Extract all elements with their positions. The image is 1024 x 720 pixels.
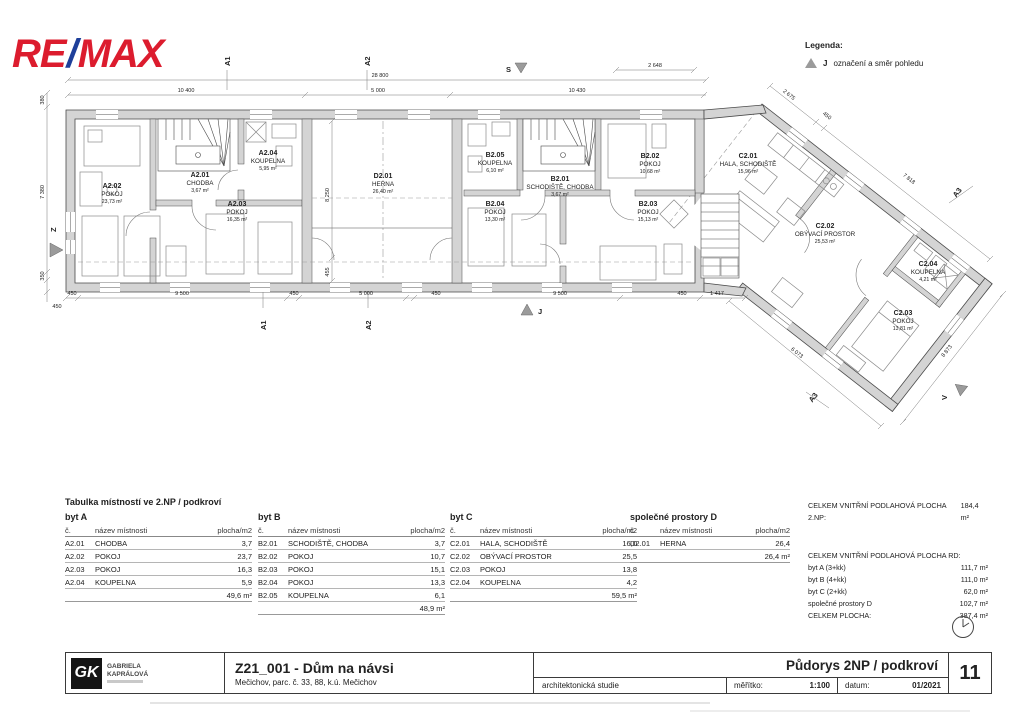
dim-label: 450 xyxy=(431,291,440,297)
title-block: GK GABRIELA KAPRÁLOVÁ Z21_001 - Dům na n… xyxy=(65,652,992,694)
svg-text:3,67 m²: 3,67 m² xyxy=(551,192,569,198)
east-marker-icon xyxy=(952,380,968,396)
svg-text:C2.01: C2.01 xyxy=(739,153,758,160)
table-row: B2.01SCHODIŠTĚ, CHODBA3,7 xyxy=(258,537,445,550)
table-total: 59,5 m² xyxy=(450,589,637,602)
svg-text:13,30 m²: 13,30 m² xyxy=(485,217,506,223)
svg-text:C2.03: C2.03 xyxy=(894,310,913,317)
table-header: č. název místnosti plocha/m2 xyxy=(65,524,252,537)
summary-row: společné prostory D102,7 m² xyxy=(808,598,988,610)
architect-name: GABRIELA KAPRÁLOVÁ xyxy=(107,663,148,684)
room-label-b203: B2.03 POKOJ 15,13 m² xyxy=(637,201,658,223)
section-marker-a1-bottom: A1 xyxy=(259,320,268,330)
table-row: A2.01CHODBA3,7 xyxy=(65,537,252,550)
svg-text:15,96 m²: 15,96 m² xyxy=(738,169,759,175)
floor-plan-sheet: RE/MAX Legenda: J označení a směr pohled… xyxy=(0,0,1024,720)
section-marker-a3: A3 xyxy=(951,186,964,199)
dim-label: 5 000 xyxy=(359,291,373,297)
summary-total-2np: CELKEM VNITŘNÍ PODLAHOVÁ PLOCHA 2.NP:184… xyxy=(808,500,988,524)
table-row: A2.03POKOJ16,3 xyxy=(65,563,252,576)
table-row: B2.03POKOJ15,1 xyxy=(258,563,445,576)
west-marker-icon xyxy=(50,243,63,257)
south-marker: J xyxy=(538,307,542,316)
svg-text:POKOJ: POKOJ xyxy=(484,209,505,216)
dim-label: 28 800 xyxy=(372,73,389,79)
room-label-a201: A2.01 CHODBA 3,67 m² xyxy=(187,172,215,194)
room-label-b202: B2.02 POKOJ 10,68 m² xyxy=(639,153,660,175)
svg-text:CHODBA: CHODBA xyxy=(187,180,215,187)
clock-icon xyxy=(950,614,976,640)
table-subtitle: byt B xyxy=(258,512,445,522)
dim-label: 7 380 xyxy=(40,185,46,199)
room-table-byt-a: Tabulka místností ve 2.NP / podkroví byt… xyxy=(65,497,252,602)
svg-text:POKOJ: POKOJ xyxy=(101,191,122,198)
section-marker-a3-bottom: A3 xyxy=(807,391,820,404)
gk-logo: GK xyxy=(71,658,102,689)
dim-label: 2 648 xyxy=(648,63,662,69)
date-cell: datum:01/2021 xyxy=(837,678,948,693)
dim-label: 450 xyxy=(67,291,76,297)
dim-label: 10 400 xyxy=(178,88,195,94)
svg-text:KOUPELNA: KOUPELNA xyxy=(911,269,946,276)
room-label-a203: A2.03 POKOJ 16,35 m² xyxy=(226,201,247,223)
floor-plan-drawing: 28 800 10 400 5 000 10 430 2 648 380 7 3… xyxy=(0,0,1024,470)
svg-text:6,10 m²: 6,10 m² xyxy=(486,168,504,174)
svg-text:C2.02: C2.02 xyxy=(816,223,835,230)
drawing-info: Půdorys 2NP / podkroví architektonická s… xyxy=(534,653,948,693)
north-marker-icon xyxy=(515,63,527,73)
svg-text:10,68 m²: 10,68 m² xyxy=(640,169,661,175)
west-marker: Z xyxy=(49,227,58,232)
dim-label: 9 500 xyxy=(553,291,567,297)
table-header: č.název místnostiplocha/m2 xyxy=(258,524,445,537)
table-row: B2.02POKOJ10,7 xyxy=(258,550,445,563)
svg-text:B2.02: B2.02 xyxy=(641,153,660,160)
scan-artifact xyxy=(150,702,710,704)
staircase-a xyxy=(158,119,230,171)
room-table-byt-b: byt B č.název místnostiplocha/m2 B2.01SC… xyxy=(258,497,445,615)
table-row: B2.04POKOJ13,3 xyxy=(258,576,445,589)
svg-text:HERNA: HERNA xyxy=(372,181,395,188)
dim-label: 9 500 xyxy=(175,291,189,297)
architect-logo: GK GABRIELA KAPRÁLOVÁ xyxy=(66,653,225,693)
room-label-d201: D2.01 HERNA 26,40 m² xyxy=(372,173,395,195)
dim-label: 2 675 xyxy=(781,89,796,102)
table-total: 48,9 m² xyxy=(258,602,445,615)
table-title xyxy=(450,497,637,511)
project-title: Z21_001 - Dům na návsi xyxy=(235,660,523,676)
table-row: C2.02OBÝVACÍ PROSTOR25,5 xyxy=(450,550,637,563)
dim-label: 455 xyxy=(325,267,331,276)
table-row: A2.02POKOJ23,7 xyxy=(65,550,252,563)
dim-label: 450 xyxy=(52,304,61,310)
south-marker-icon xyxy=(521,304,533,315)
scale-cell: měřítko:1:100 xyxy=(726,678,837,693)
drawing-meta: architektonická studie měřítko:1:100 dat… xyxy=(534,678,948,693)
dim-label: 6 073 xyxy=(789,347,804,360)
room-label-c203: C2.03 POKOJ 13,81 m² xyxy=(892,310,913,332)
svg-text:POKOJ: POKOJ xyxy=(637,209,658,216)
svg-text:25,53 m²: 25,53 m² xyxy=(815,239,836,245)
summary-heading: CELKEM VNITŘNÍ PODLAHOVÁ PLOCHA RD: xyxy=(808,550,988,562)
table-row: C2.03POKOJ13,8 xyxy=(450,563,637,576)
dim-label: 450 xyxy=(821,111,832,121)
room-table-byt-c: byt C č.název místnostiplocha/m2 C2.01HA… xyxy=(450,497,637,602)
summary-row: byt C (2+kk)62,0 m² xyxy=(808,586,988,598)
table-header: č.název místnostiplocha/m2 xyxy=(630,524,790,537)
table-subtitle: byt A xyxy=(65,512,252,522)
firm-tagline-bar xyxy=(107,680,143,683)
dim-label: 10 430 xyxy=(569,88,586,94)
dim-label: 450 xyxy=(677,291,686,297)
dim-label: 1 417 xyxy=(710,291,724,297)
project-location: Mečichov, parc. č. 33, 88, k.ú. Mečichov xyxy=(235,678,523,687)
svg-text:OBÝVACÍ PROSTOR: OBÝVACÍ PROSTOR xyxy=(795,229,856,238)
svg-text:SCHODIŠTĚ, CHODBA: SCHODIŠTĚ, CHODBA xyxy=(526,182,594,191)
room-label-a202: A2.02 POKOJ 23,73 m² xyxy=(101,183,122,205)
table-title xyxy=(630,497,790,511)
section-marker-a2: A2 xyxy=(363,56,372,66)
svg-text:16,35 m²: 16,35 m² xyxy=(227,217,248,223)
svg-text:15,13 m²: 15,13 m² xyxy=(638,217,659,223)
project-phase: architektonická studie xyxy=(534,681,726,690)
svg-text:B2.04: B2.04 xyxy=(486,201,505,208)
svg-text:B2.03: B2.03 xyxy=(639,201,658,208)
dim-label: 8 250 xyxy=(325,188,331,202)
table-row: C2.01HALA, SCHODIŠTĚ16,0 xyxy=(450,537,637,550)
svg-text:D2.01: D2.01 xyxy=(374,173,393,180)
drawing-title: Půdorys 2NP / podkroví xyxy=(534,653,948,678)
room-table-spolecne-d: společné prostory D č.název místnostiplo… xyxy=(630,497,790,563)
room-label-b205: B2.05 KOUPELNA 6,10 m² xyxy=(478,152,513,174)
staircase-b xyxy=(523,119,595,171)
table-total: 49,6 m² xyxy=(65,589,252,602)
svg-text:KOUPELNA: KOUPELNA xyxy=(251,158,286,165)
svg-text:C2.04: C2.04 xyxy=(919,261,938,268)
dim-label: 7 818 xyxy=(901,173,916,186)
svg-text:POKOJ: POKOJ xyxy=(892,318,913,325)
svg-text:HALA, SCHODIŠTĚ: HALA, SCHODIŠTĚ xyxy=(720,159,777,168)
svg-text:B2.01: B2.01 xyxy=(551,176,570,183)
project-info: Z21_001 - Dům na návsi Mečichov, parc. č… xyxy=(225,653,534,693)
svg-text:3,67 m²: 3,67 m² xyxy=(191,188,209,194)
svg-text:POKOJ: POKOJ xyxy=(226,209,247,216)
north-marker: S xyxy=(506,65,511,74)
summary-row: byt B (4+kk)111,0 m² xyxy=(808,574,988,586)
area-summary: CELKEM VNITŘNÍ PODLAHOVÁ PLOCHA 2.NP:184… xyxy=(808,500,988,622)
room-label-b204: B2.04 POKOJ 13,30 m² xyxy=(484,201,505,223)
svg-text:5,95 m²: 5,95 m² xyxy=(259,166,277,172)
svg-text:A2.01: A2.01 xyxy=(191,172,210,179)
svg-text:26,40 m²: 26,40 m² xyxy=(373,189,394,195)
table-header: č.název místnostiplocha/m2 xyxy=(450,524,637,537)
dim-label: 5 000 xyxy=(371,88,385,94)
table-total: 26,4 m² xyxy=(630,550,790,563)
table-subtitle: byt C xyxy=(450,512,637,522)
table-title xyxy=(258,497,445,511)
svg-text:A2.03: A2.03 xyxy=(228,201,247,208)
svg-text:13,81 m²: 13,81 m² xyxy=(893,326,914,332)
room-label-a204: A2.04 KOUPELNA 5,95 m² xyxy=(251,150,286,172)
table-subtitle: společné prostory D xyxy=(630,512,790,522)
table-row: B2.05KOUPELNA6,1 xyxy=(258,589,445,602)
section-marker-a1: A1 xyxy=(223,56,232,66)
table-row: C2.04KOUPELNA4,2 xyxy=(450,576,637,589)
summary-row: byt A (3+kk)111,7 m² xyxy=(808,562,988,574)
east-marker: V xyxy=(940,395,949,400)
svg-text:KOUPELNA: KOUPELNA xyxy=(478,160,513,167)
scan-artifact xyxy=(690,710,970,712)
section-marker-a2-bottom: A2 xyxy=(364,320,373,330)
dim-label: 350 xyxy=(40,271,46,280)
svg-text:A2.02: A2.02 xyxy=(103,183,122,190)
svg-text:POKOJ: POKOJ xyxy=(639,161,660,168)
dim-label: 380 xyxy=(40,95,46,104)
svg-text:4,21 m²: 4,21 m² xyxy=(919,277,937,283)
svg-text:A2.04: A2.04 xyxy=(259,150,278,157)
svg-text:23,73 m²: 23,73 m² xyxy=(102,199,123,205)
table-row: A2.04KOUPELNA5,9 xyxy=(65,576,252,589)
table-title: Tabulka místností ve 2.NP / podkroví xyxy=(65,497,252,511)
sheet-number: 11 xyxy=(948,653,991,693)
svg-text:B2.05: B2.05 xyxy=(486,152,505,159)
dim-label: 450 xyxy=(289,291,298,297)
table-row: D2.01HERNA26,4 xyxy=(630,537,790,550)
